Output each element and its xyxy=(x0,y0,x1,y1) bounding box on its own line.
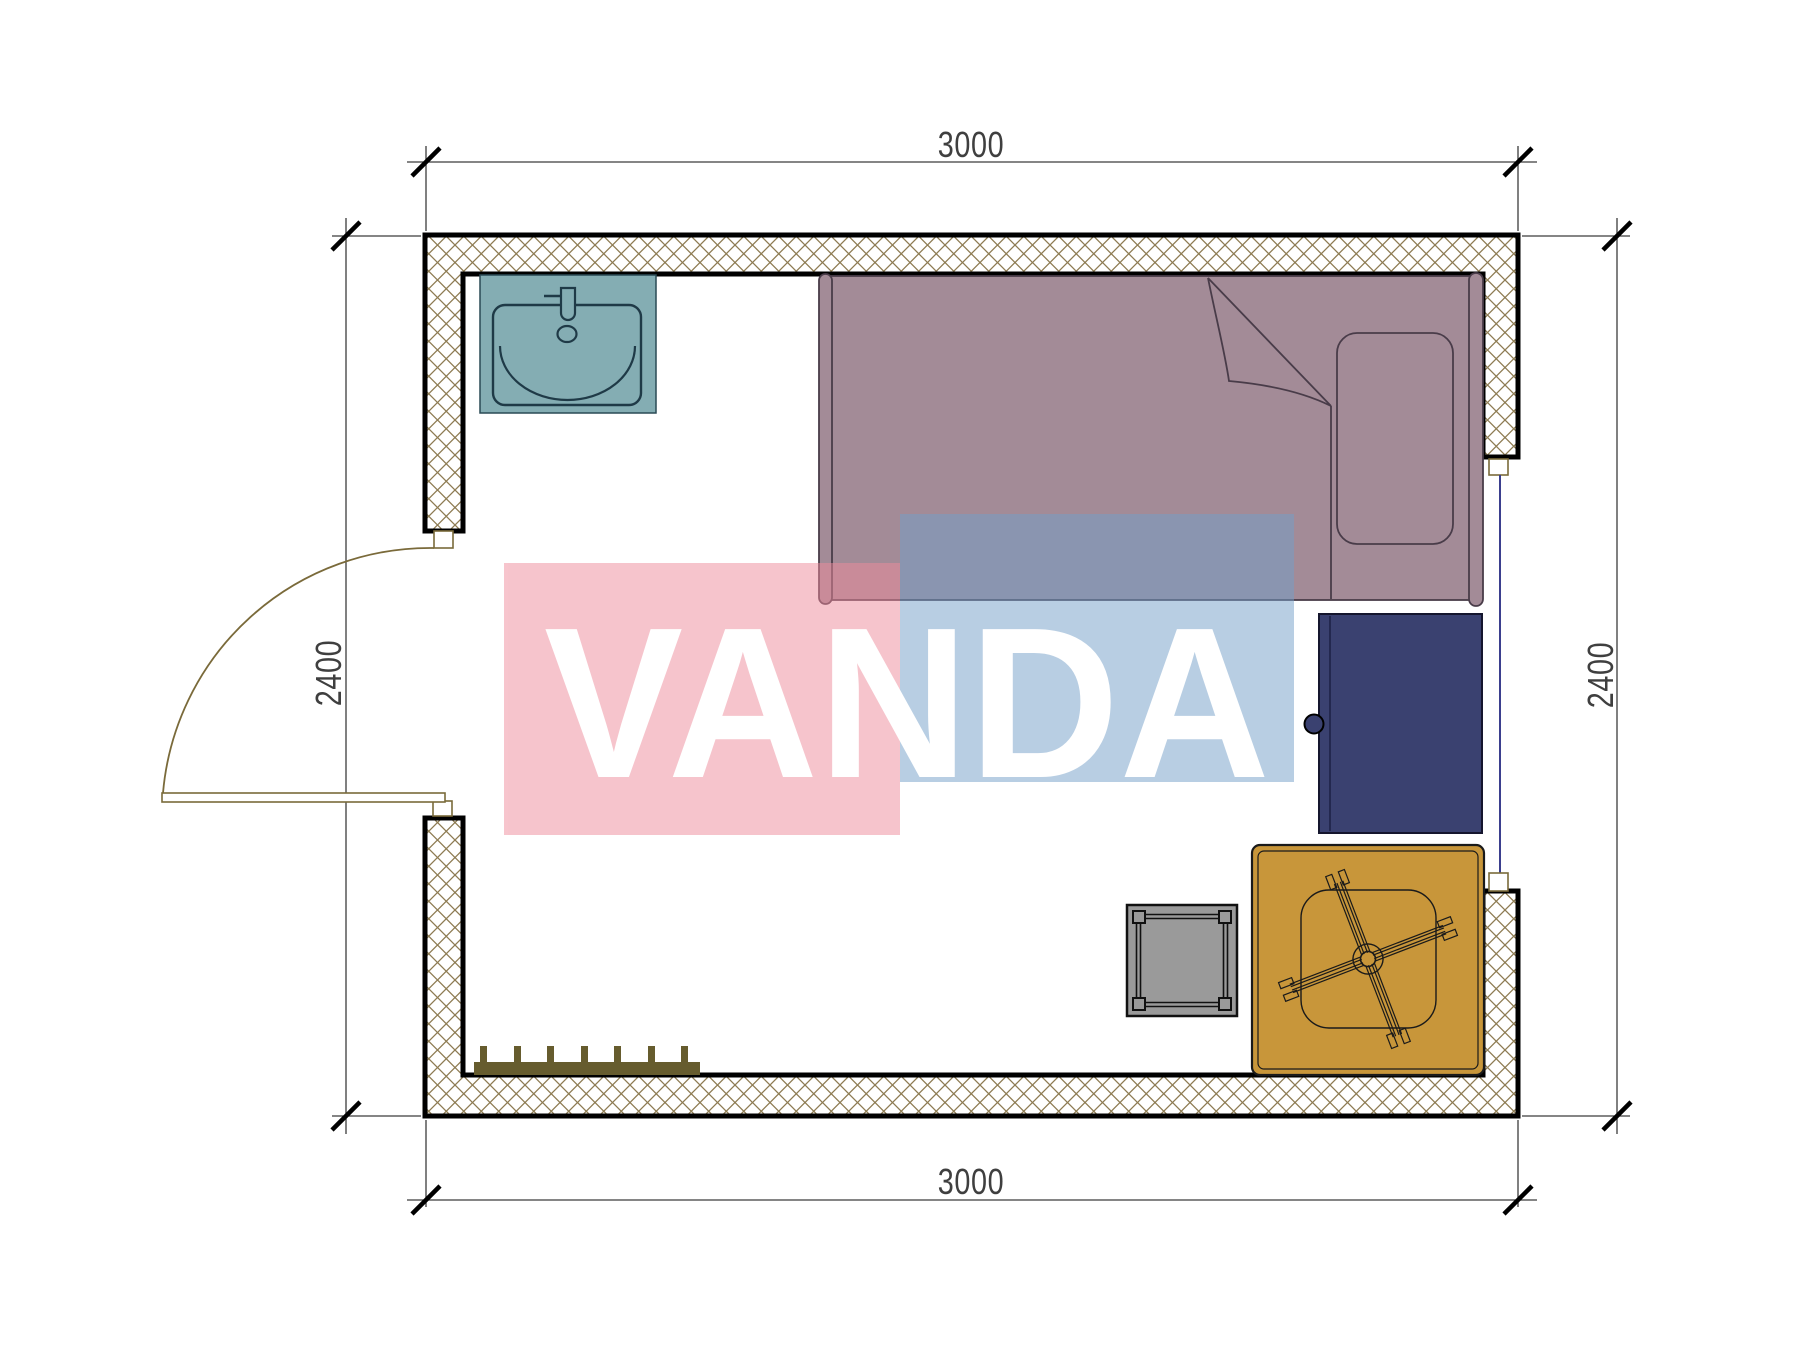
svg-text:2400: 2400 xyxy=(308,640,349,707)
svg-text:VANDA: VANDA xyxy=(544,582,1270,823)
svg-text:2400: 2400 xyxy=(1580,642,1621,709)
svg-text:3000: 3000 xyxy=(938,1161,1005,1202)
svg-text:3000: 3000 xyxy=(938,124,1005,165)
